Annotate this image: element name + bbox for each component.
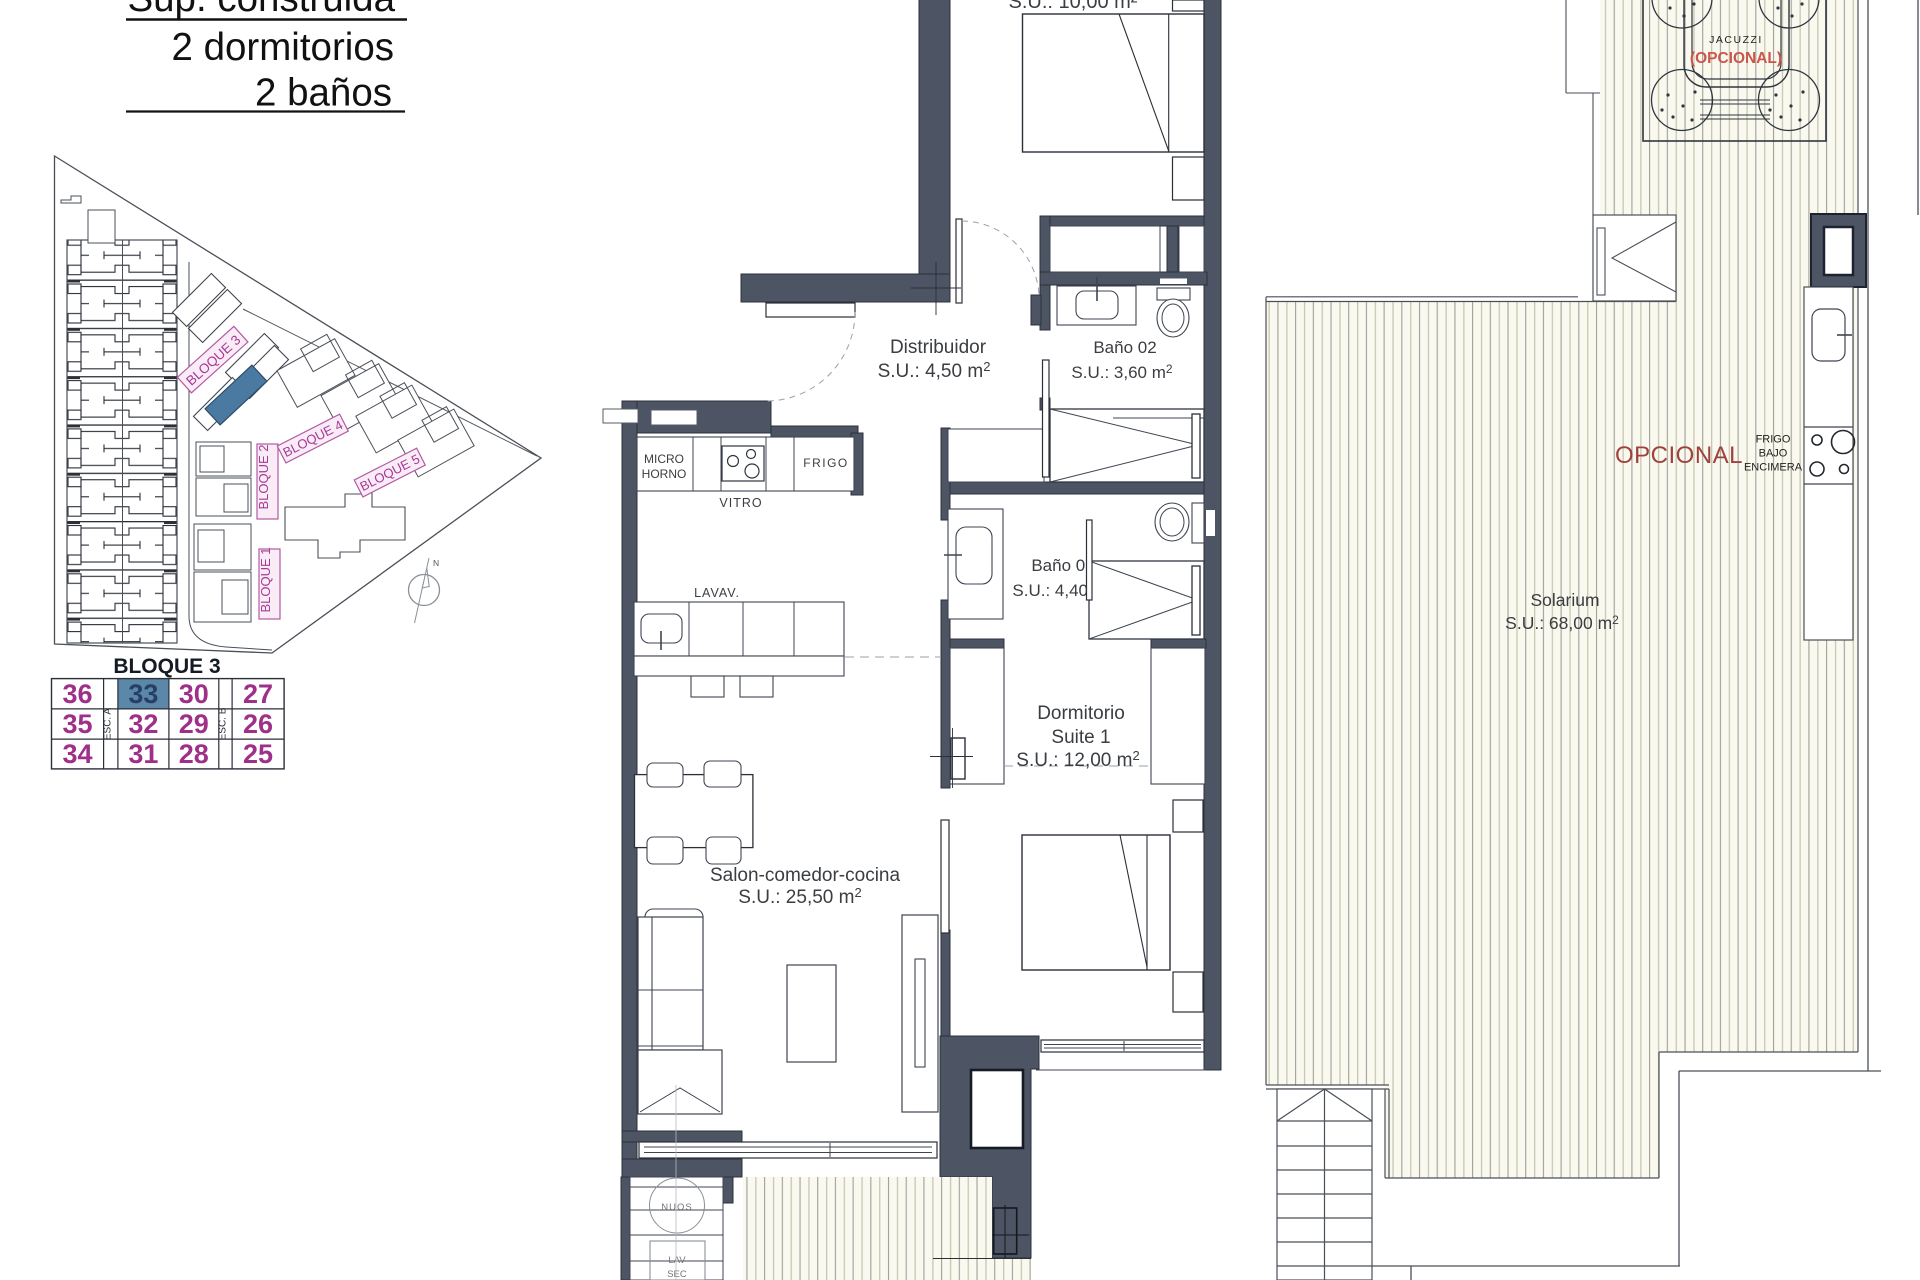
svg-text:LAVAV.: LAVAV. xyxy=(694,586,740,600)
svg-text:NUOS: NUOS xyxy=(661,1202,692,1213)
svg-text:S.U.: 10,00 m²: S.U.: 10,00 m² xyxy=(1009,0,1138,13)
svg-text:LAV: LAV xyxy=(668,1255,686,1266)
svg-text:VITRO: VITRO xyxy=(719,496,762,510)
svg-text:26: 26 xyxy=(243,709,273,739)
svg-text:Dormitorio: Dormitorio xyxy=(1037,703,1125,724)
svg-text:BLOQUE 1: BLOQUE 1 xyxy=(258,547,273,612)
svg-text:S.U.: 4,50 m2: S.U.: 4,50 m2 xyxy=(878,359,991,382)
svg-text:Solarium: Solarium xyxy=(1530,590,1599,610)
svg-text:28: 28 xyxy=(179,739,209,769)
svg-text:30: 30 xyxy=(179,679,209,709)
svg-text:ENCIMERA: ENCIMERA xyxy=(1744,462,1803,474)
svg-text:34: 34 xyxy=(62,739,92,769)
svg-text:Baño 01: Baño 01 xyxy=(1031,556,1094,575)
svg-text:25: 25 xyxy=(243,739,273,769)
svg-text:32: 32 xyxy=(128,709,158,739)
svg-text:Distribuidor: Distribuidor xyxy=(890,337,987,358)
svg-text:BLOQUE 3: BLOQUE 3 xyxy=(113,655,220,678)
svg-text:S.U.: 3,60 m2: S.U.: 3,60 m2 xyxy=(1071,362,1172,382)
svg-text:OPCIONAL: OPCIONAL xyxy=(1615,442,1743,469)
svg-text:N: N xyxy=(433,558,439,568)
svg-text:31: 31 xyxy=(128,739,158,769)
svg-text:2 baños: 2 baños xyxy=(255,72,392,115)
svg-text:HORNO: HORNO xyxy=(642,467,687,481)
svg-text:SEC: SEC xyxy=(667,1269,687,1280)
svg-text:S.U.: 25,50 m2: S.U.: 25,50 m2 xyxy=(738,885,861,908)
svg-text:2 dormitorios: 2 dormitorios xyxy=(171,26,394,69)
svg-text:MICRO: MICRO xyxy=(644,452,684,466)
svg-text:35: 35 xyxy=(62,709,92,739)
svg-text:JACUZZI: JACUZZI xyxy=(1709,34,1763,46)
svg-text:FRIGO: FRIGO xyxy=(803,456,849,470)
svg-text:FRIGO: FRIGO xyxy=(1756,434,1791,446)
svg-text:S.U.: 12,00 m2: S.U.: 12,00 m2 xyxy=(1016,748,1139,771)
svg-text:29: 29 xyxy=(179,709,209,739)
svg-text:ESC. A: ESC. A xyxy=(103,708,114,741)
svg-text:Sup. construida: Sup. construida xyxy=(127,0,395,20)
svg-text:27: 27 xyxy=(243,679,273,709)
svg-text:36: 36 xyxy=(62,679,92,709)
svg-text:Baño 02: Baño 02 xyxy=(1093,338,1156,357)
svg-text:ESC. B: ESC. B xyxy=(217,707,228,740)
svg-text:BLOQUE 2: BLOQUE 2 xyxy=(256,444,271,509)
svg-text:33: 33 xyxy=(128,679,158,709)
svg-text:Suite 1: Suite 1 xyxy=(1051,727,1110,748)
svg-text:BAJO: BAJO xyxy=(1759,448,1788,460)
svg-text:Salon-comedor-cocina: Salon-comedor-cocina xyxy=(710,865,901,886)
svg-text:(OPCIONAL): (OPCIONAL) xyxy=(1690,50,1782,67)
svg-text:S.U.: 68,00 m2: S.U.: 68,00 m2 xyxy=(1505,613,1619,633)
